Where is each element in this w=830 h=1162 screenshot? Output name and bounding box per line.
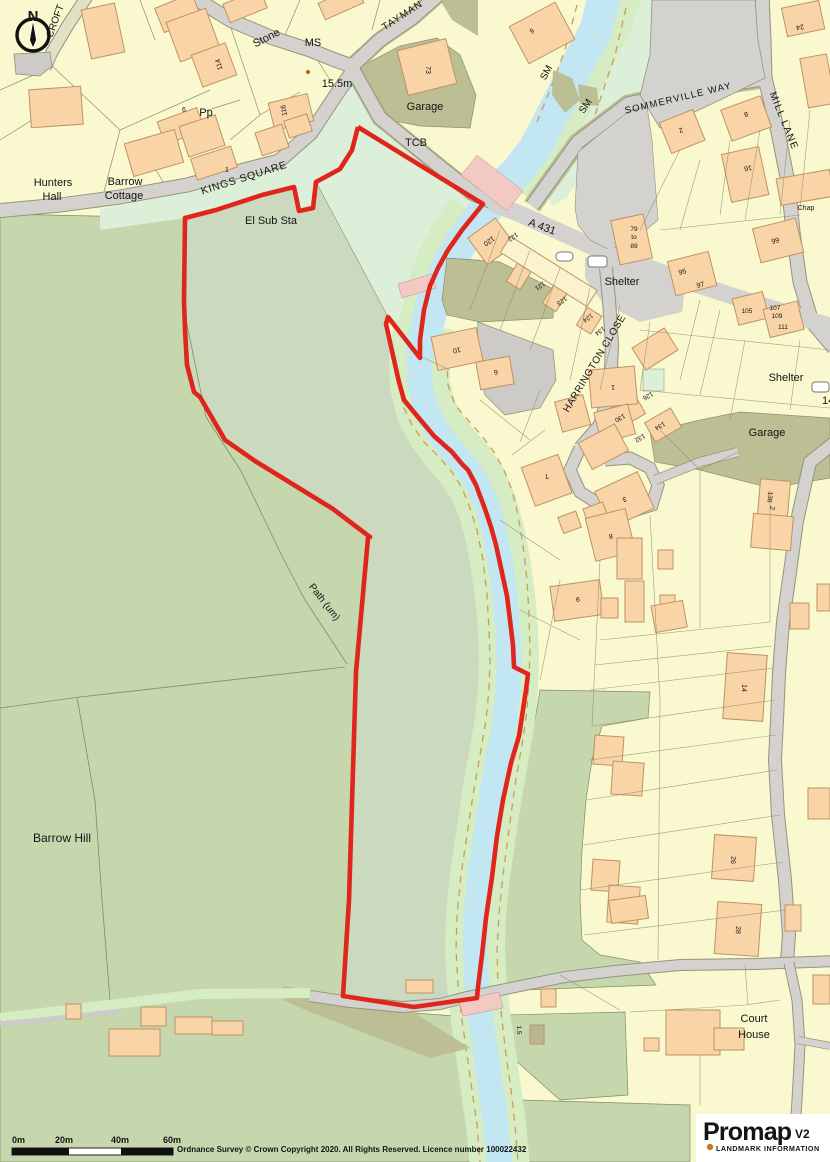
svg-text:73: 73 (424, 66, 431, 74)
svg-text:40m: 40m (111, 1135, 129, 1145)
svg-text:1.5: 1.5 (515, 1025, 522, 1034)
svg-text:9: 9 (576, 595, 581, 602)
svg-text:Hall: Hall (43, 191, 62, 203)
svg-text:to: to (631, 234, 637, 241)
svg-text:LANDMARK INFORMATION: LANDMARK INFORMATION (716, 1144, 820, 1153)
svg-text:1: 1 (611, 383, 615, 390)
svg-text:MS: MS (305, 37, 322, 49)
svg-text:28: 28 (734, 926, 741, 934)
svg-text:TCB: TCB (405, 137, 427, 149)
svg-text:15.5m: 15.5m (322, 78, 353, 90)
svg-text:111: 111 (778, 324, 788, 331)
svg-text:Court: Court (741, 1013, 768, 1025)
svg-text:0m: 0m (12, 1135, 25, 1145)
svg-text:El Sub Sta: El Sub Sta (245, 215, 298, 227)
svg-text:107: 107 (770, 305, 781, 312)
svg-text:Shelter: Shelter (605, 276, 640, 288)
svg-text:24: 24 (795, 22, 804, 30)
svg-text:6: 6 (182, 107, 186, 114)
svg-text:26: 26 (729, 856, 736, 864)
svg-text:14.: 14. (822, 395, 830, 407)
svg-text:Barrow Hill: Barrow Hill (33, 831, 91, 845)
svg-text:House: House (738, 1029, 770, 1041)
svg-text:1: 1 (225, 167, 229, 174)
svg-text:N: N (28, 8, 39, 25)
svg-text:Shelter: Shelter (769, 372, 804, 384)
svg-text:138: 138 (765, 491, 773, 503)
svg-text:Barrow: Barrow (108, 176, 143, 188)
svg-text:60m: 60m (163, 1135, 181, 1145)
svg-text:Promap: Promap (703, 1118, 792, 1146)
svg-text:109: 109 (772, 313, 783, 320)
svg-text:Hunters: Hunters (34, 177, 73, 189)
svg-text:89: 89 (630, 243, 638, 250)
svg-text:Chap: Chap (798, 205, 815, 212)
svg-text:Cottage: Cottage (105, 190, 144, 202)
svg-text:20m: 20m (55, 1135, 73, 1145)
svg-text:105: 105 (742, 308, 753, 315)
svg-text:16: 16 (743, 163, 752, 171)
svg-text:Pp: Pp (199, 107, 212, 119)
svg-text:Ordnance Survey © Crown Copyri: Ordnance Survey © Crown Copyright 2020. … (177, 1145, 527, 1154)
svg-text:Garage: Garage (407, 101, 444, 113)
svg-text:Garage: Garage (749, 427, 786, 439)
svg-text:79: 79 (630, 226, 638, 233)
svg-text:14: 14 (740, 684, 747, 692)
svg-text:V2: V2 (795, 1127, 810, 1141)
